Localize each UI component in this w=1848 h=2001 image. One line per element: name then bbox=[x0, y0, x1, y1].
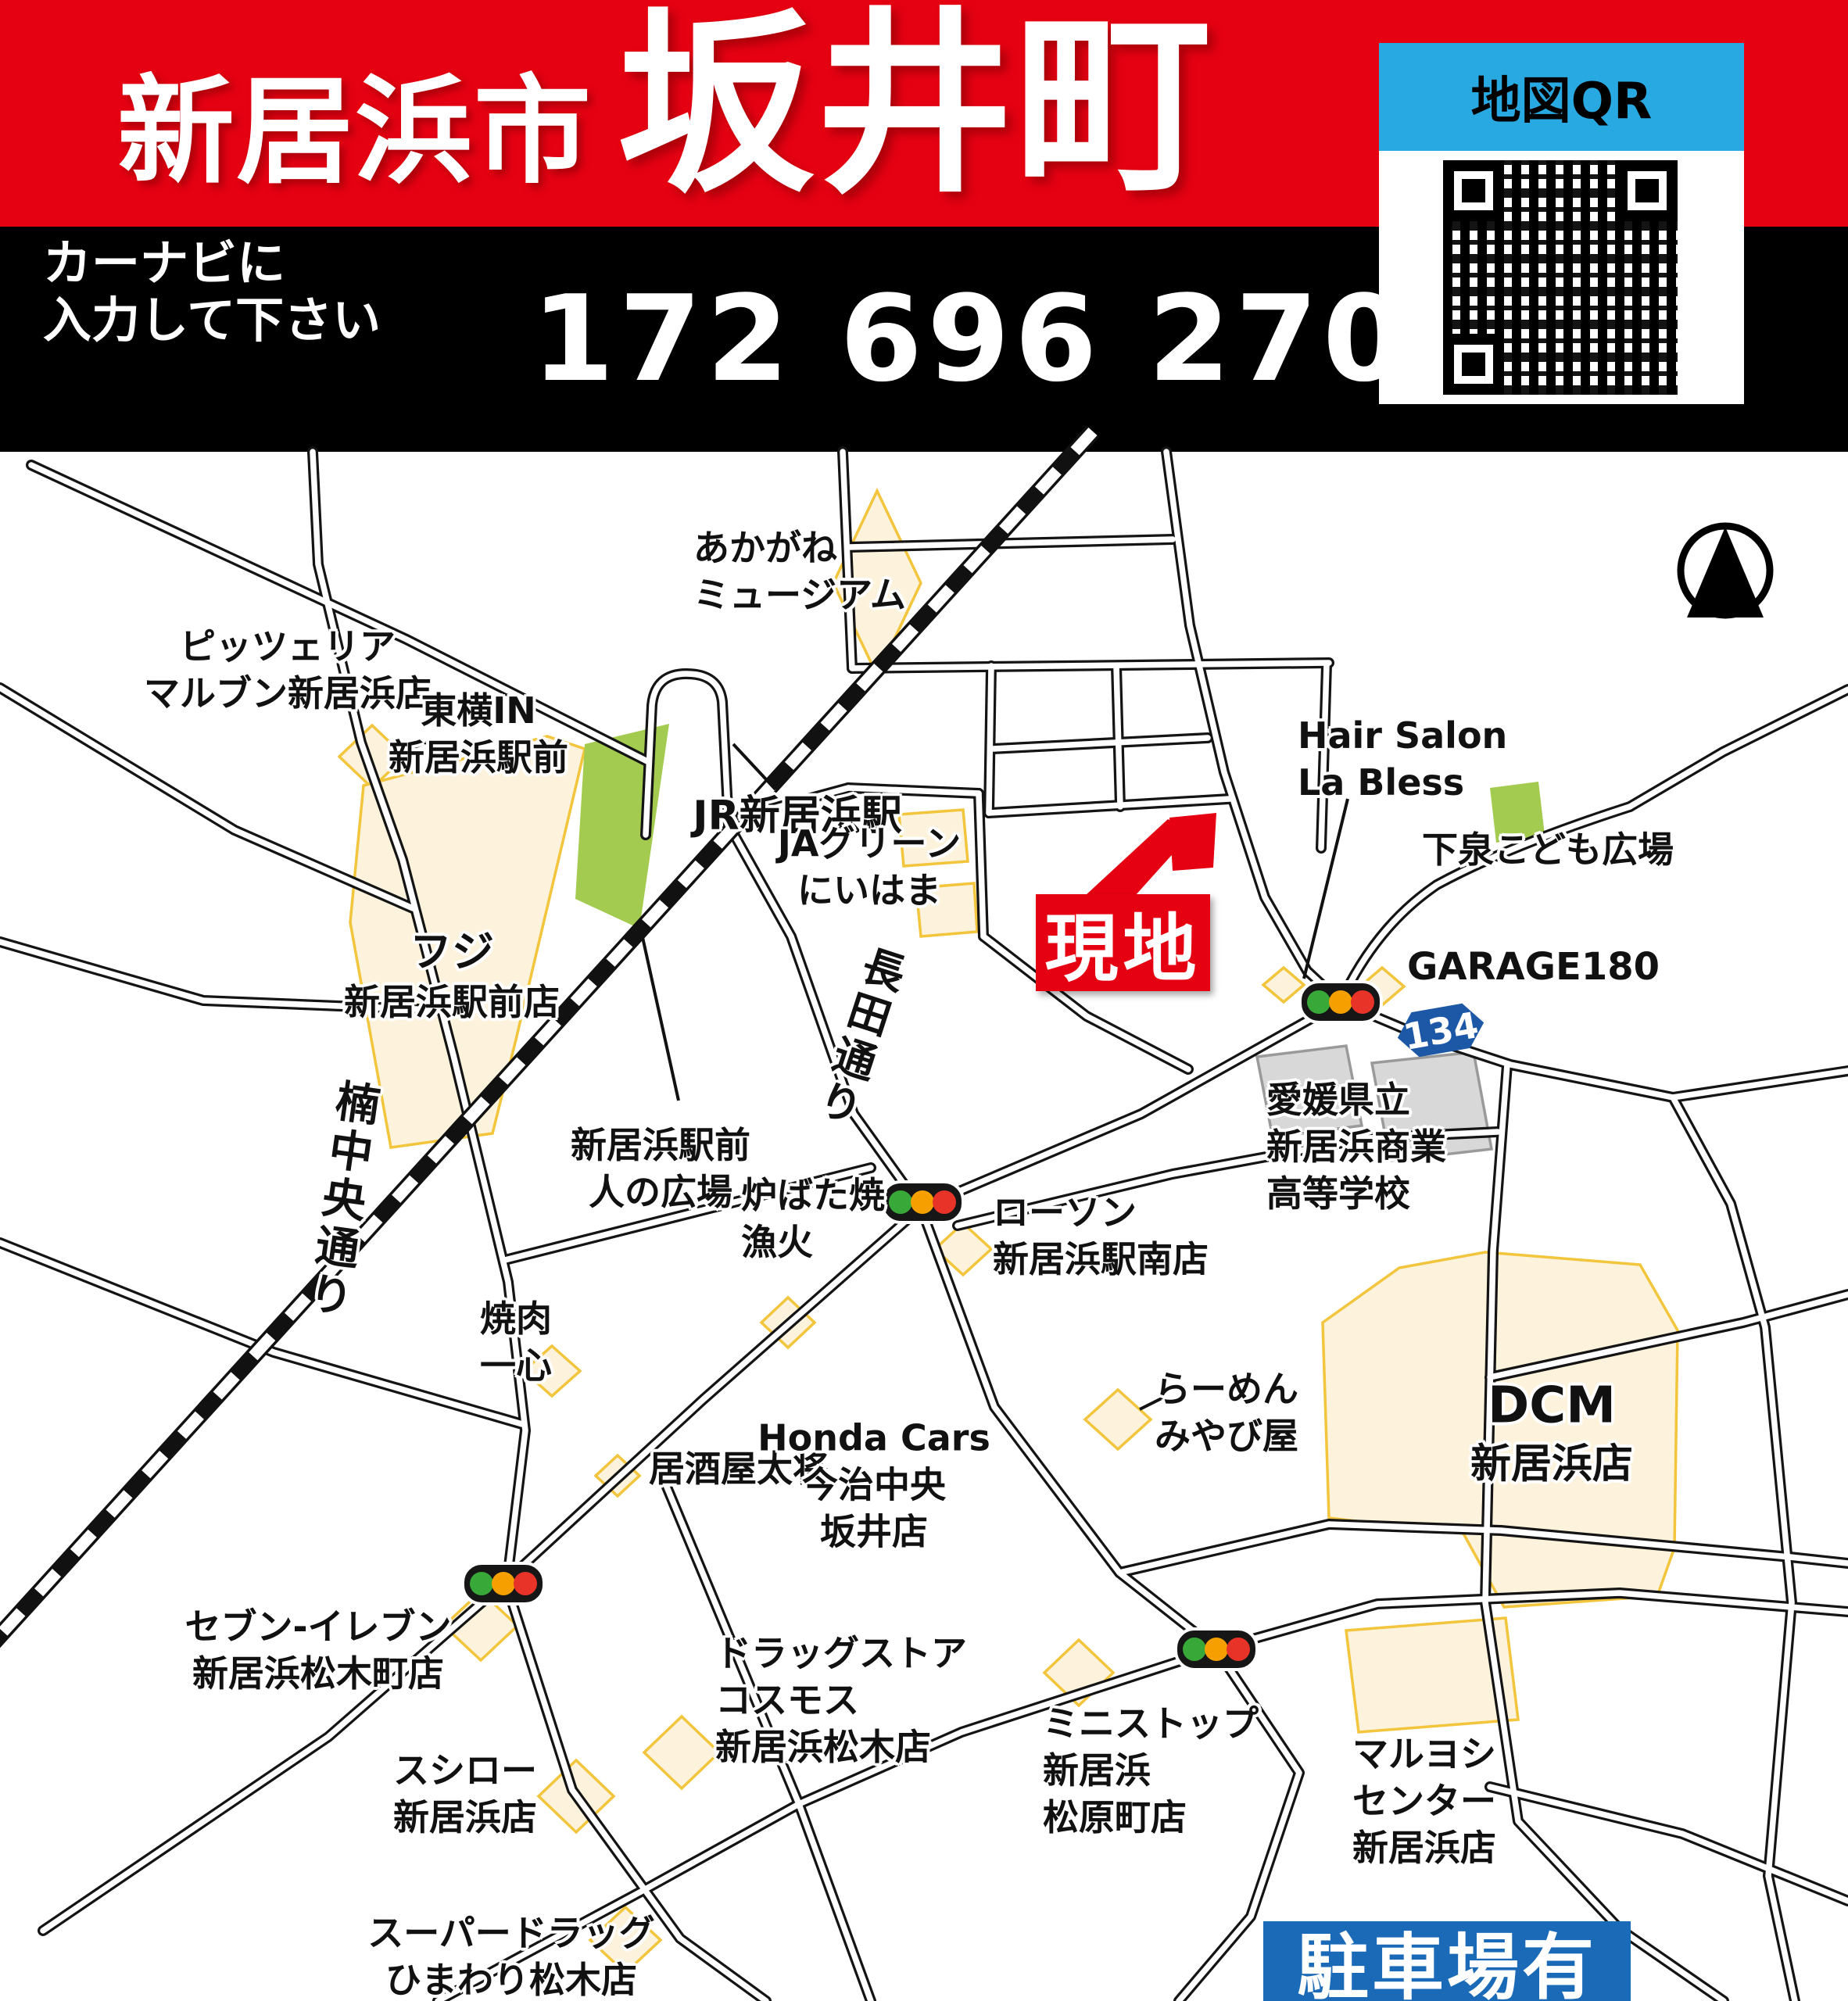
place-label-akagane-museum: あかがねミュージアム bbox=[693, 525, 906, 619]
place-label-hair-salon: Hair SalonLa Bless bbox=[1298, 713, 1507, 807]
place-label-hito-no-hiroba: 新居浜駅前人の広場 bbox=[571, 1122, 750, 1216]
place-label-yakiniku-isshin: 焼肉一心 bbox=[480, 1296, 552, 1390]
traffic-light-icon bbox=[1300, 982, 1381, 1022]
place-label-robatayaki: 炉ばた焼漁火 bbox=[741, 1172, 885, 1266]
place-label-cosmos: ドラッグストアコスモス新居浜松木店 bbox=[715, 1631, 967, 1770]
traffic-light-icon bbox=[882, 1182, 963, 1222]
place-label-garage180: GARAGE180 bbox=[1407, 943, 1660, 991]
place-label-toyoko-in: 東横IN新居浜駅前 bbox=[389, 688, 568, 782]
place-label-ministop: ミニストップ新居浜松原町店 bbox=[1043, 1701, 1259, 1841]
place-label-dcm: DCM新居浜店 bbox=[1470, 1374, 1633, 1492]
site-marker: 現地 bbox=[1036, 894, 1210, 991]
place-label-school: 愛媛県立新居浜商業高等学校 bbox=[1266, 1077, 1446, 1217]
flyer-map-poster: 新居浜市 坂井町 カーナビに 入力して下さい 172 696 270 地図QR bbox=[0, 0, 1848, 2001]
place-label-ja-green: JAグリーンにいはま bbox=[778, 821, 961, 915]
qr-panel-title: 地図QR bbox=[1379, 43, 1744, 151]
qr-finder-icon bbox=[1443, 160, 1504, 221]
place-label-honda-cars: Honda Cars今治中央坂井店 bbox=[757, 1415, 990, 1555]
place-label-miyabiya: らーめんみやび屋 bbox=[1155, 1366, 1298, 1460]
qr-finder-icon bbox=[1443, 334, 1504, 395]
qr-code-image bbox=[1443, 160, 1678, 395]
map-qr-panel: 地図QR bbox=[1379, 43, 1744, 404]
qr-panel-body bbox=[1379, 151, 1744, 404]
qr-finder-icon bbox=[1617, 160, 1678, 221]
place-label-fuji: フジ新居浜駅前店 bbox=[344, 925, 560, 1026]
place-label-maruyoshi: マルヨシセンター新居浜店 bbox=[1352, 1731, 1496, 1871]
traffic-light-icon bbox=[1176, 1629, 1257, 1670]
place-label-himawari: スーパードラッグひまわり松木店 bbox=[367, 1910, 655, 2001]
north-arrow-icon bbox=[1681, 526, 1770, 617]
place-label-shimoizumi-park: 下泉こども広場 bbox=[1422, 827, 1674, 874]
traffic-light-icon bbox=[463, 1563, 544, 1604]
place-label-seven-eleven: セブン-イレブン新居浜松木町店 bbox=[184, 1604, 451, 1698]
place-label-sushiro: スシロー新居浜店 bbox=[393, 1748, 537, 1842]
route-map: 134 ピッツェリアマルブン新居浜店 東横IN新居浜駅前 あかがねミュージアム … bbox=[0, 452, 1848, 2001]
parking-badge: 駐車場有 bbox=[1263, 1921, 1631, 2001]
place-label-lawson: ローソン新居浜駅南店 bbox=[993, 1190, 1209, 1283]
